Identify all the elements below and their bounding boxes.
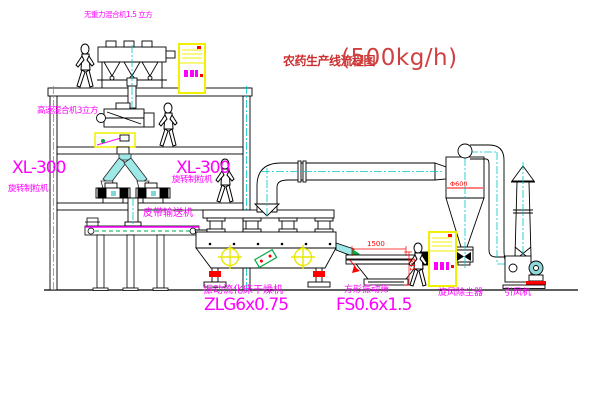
dim-sieve-height: 541 xyxy=(408,258,416,271)
exhaust-duct xyxy=(255,161,446,216)
label-cyclone: 旋风除尘器 xyxy=(438,289,483,298)
label-sieve-model: FS0.6x1.5 xyxy=(336,297,411,314)
fluid-bed-dryer xyxy=(195,210,360,287)
label-belt-conveyor: 皮带输送机 xyxy=(143,209,193,219)
gravity-mixer xyxy=(97,41,175,112)
belt-conveyor xyxy=(85,218,199,291)
label-sieve-name: 方形振动筛 xyxy=(344,286,389,295)
granulator-left xyxy=(96,183,130,203)
dim-sieve-length: 1500 xyxy=(367,240,385,248)
indicator-light xyxy=(197,46,201,49)
label-granulator-left-name: 旋转制粒机 xyxy=(8,185,48,194)
cyclone-top-cap xyxy=(458,144,472,158)
control-cabinet-top xyxy=(179,44,205,93)
indicator-marks xyxy=(184,70,198,77)
worker-figure-floor2 xyxy=(159,103,177,146)
diagram-title-capacity: (500kg/h) xyxy=(341,45,458,71)
dim-cyclone-diameter: Φ600 xyxy=(450,180,468,188)
indicator-light xyxy=(448,234,452,237)
label-granulator-left-model: XL-300 xyxy=(12,160,65,177)
label-gravity-mixer: 无重力混合机1.5 立方 xyxy=(84,11,152,19)
label-dryer-model: ZLG6x0.75 xyxy=(204,297,288,314)
worker-figure-roof xyxy=(76,44,94,87)
induced-draft-fan xyxy=(503,256,546,289)
label-high-speed-mixer: 高速混合机3立方 xyxy=(37,107,98,116)
flow-diagram: 农药生产线流程图 (500kg/h) 无重力混合机1.5 立方 高速混合机3立方… xyxy=(0,0,600,403)
control-cabinet-ground xyxy=(429,232,456,286)
label-granulator-right-name: 旋转制粒机 xyxy=(172,176,212,185)
indicator-marks xyxy=(434,262,449,270)
label-fan: 引风机 xyxy=(504,289,531,298)
high-speed-mixer xyxy=(95,103,154,154)
